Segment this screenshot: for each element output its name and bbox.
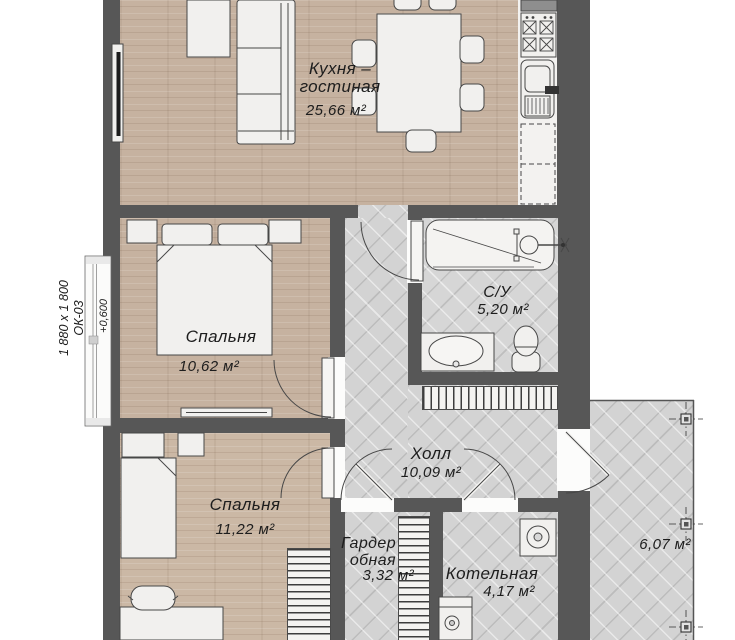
single-bed (121, 458, 176, 558)
nightstand (122, 433, 164, 457)
kitchen-living-label: Кухня – гостиная (300, 60, 381, 96)
wardrobe-door (341, 449, 392, 500)
kitchen-living-area: 25,66 м² (306, 103, 366, 119)
tv (117, 52, 121, 136)
bedroom1-label: Спальня (186, 328, 257, 346)
pillow (162, 224, 212, 245)
porch-area: 6,07 м² (639, 537, 690, 553)
sink-faucet (545, 86, 559, 94)
kitchen-fixtures (521, 0, 559, 204)
bathroom-label: С/У (483, 284, 510, 302)
room-name-line: Кухня – (300, 60, 381, 78)
sink-drainboard (525, 96, 550, 116)
window-dimension-label: 1 880 x 1 800 ОК-03 (57, 233, 87, 403)
floor-plan: Кухня – гостиная 25,66 м² Спальня 10,62 … (0, 0, 735, 640)
boiler-room-door (464, 449, 515, 500)
pillow (218, 224, 268, 245)
bedroom2-furniture (120, 433, 223, 640)
hall-area: 10,09 м² (401, 465, 461, 481)
living-room-furniture (112, 0, 484, 152)
boiler-room-label: Котельная (446, 565, 539, 583)
hall-label: Холл (411, 445, 452, 463)
column-marker (669, 610, 703, 640)
bedroom2-label: Спальня (210, 496, 281, 514)
bathroom-door-leaf (411, 221, 423, 281)
window-size-text: 1 880 x 1 800 (57, 233, 72, 403)
fridge (521, 0, 557, 11)
bathroom-area: 5,20 м² (477, 302, 528, 318)
column-marker (669, 402, 703, 436)
porch-outline (590, 400, 694, 640)
bedroom2-door-leaf (322, 448, 334, 498)
desk (120, 607, 223, 640)
bedroom2-area: 11,22 м² (215, 522, 274, 538)
room-name-line: Гардер (330, 536, 396, 553)
wardrobe-area: 3,32 м² (346, 568, 414, 584)
basin-tap (453, 361, 459, 367)
sofa (237, 0, 295, 144)
column-markers (669, 402, 703, 640)
floor-elevation-label: +0,600 (98, 276, 110, 356)
room-name-line: гостиная (300, 78, 381, 96)
bedroom1-area: 10,62 м² (179, 359, 239, 375)
chair (131, 586, 175, 610)
bathtub (426, 220, 554, 270)
coffee-table (187, 0, 230, 57)
nightstand (269, 220, 301, 243)
bedroom1-door-leaf (322, 358, 334, 418)
boiler-room-area: 4,17 м² (483, 584, 534, 600)
bedroom1-furniture (127, 220, 301, 417)
toilet-bowl (514, 326, 538, 356)
nightstand (127, 220, 157, 243)
dining-table (377, 14, 461, 132)
washing-machine (439, 597, 472, 640)
wardrobe-label: Гардер обная (330, 536, 396, 569)
shelf (178, 433, 204, 456)
window-code-text: ОК-03 (72, 233, 87, 403)
